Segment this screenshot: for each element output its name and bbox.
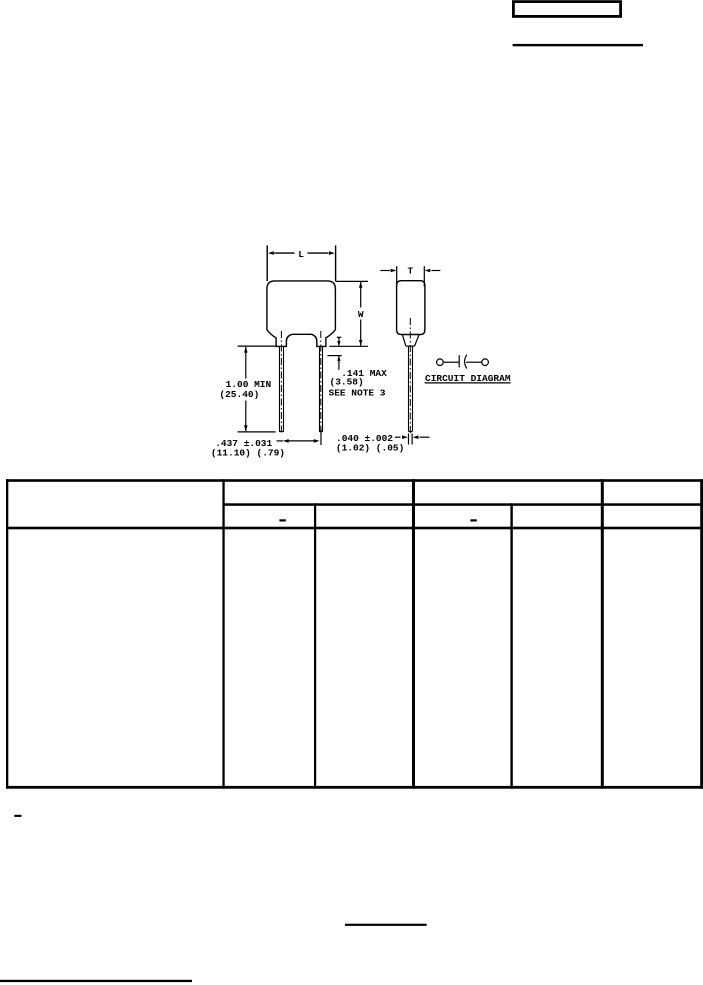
svg-text:(3.58): (3.58) (330, 376, 364, 387)
svg-text:W: W (358, 309, 364, 320)
svg-text:(1.02) (.05): (1.02) (.05) (336, 443, 404, 454)
svg-text:SEE NOTE 3: SEE NOTE 3 (329, 387, 386, 398)
svg-text:(11.10) (.79): (11.10) (.79) (211, 447, 285, 458)
svg-text:L: L (298, 249, 304, 260)
svg-text:(25.40): (25.40) (219, 389, 259, 400)
svg-text:T: T (408, 265, 414, 276)
